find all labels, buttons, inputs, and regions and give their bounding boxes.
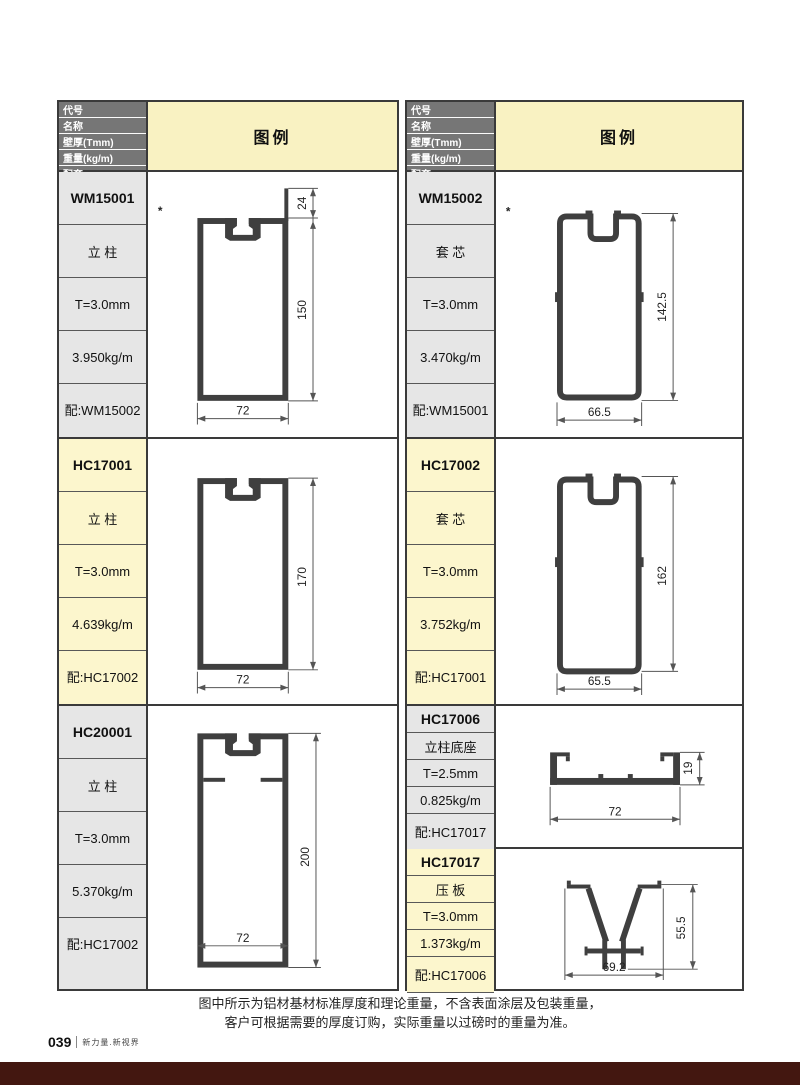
legend-header: 图例	[148, 102, 397, 170]
height-dim-label: 200	[298, 847, 312, 867]
entry-weight: 0.825kg/m	[407, 787, 494, 814]
entry-labels: HC20001 立 柱 T=3.0mm 5.370kg/m 配:HC17002	[59, 706, 148, 989]
entry-thickness: T=2.5mm	[407, 760, 494, 787]
height-dim-label: 170	[295, 567, 309, 587]
entry-thickness: T=3.0mm	[407, 545, 494, 598]
entry-match: 配:HC17002	[59, 918, 146, 989]
entry-wm15001: WM15001 立 柱 T=3.0mm 3.950kg/m 配:WM15002 …	[59, 172, 397, 439]
entry-thickness: T=3.0mm	[59, 545, 146, 598]
entry-name: 套 芯	[407, 225, 494, 278]
entry-hc17017: HC17017 压 板 T=3.0mm 1.373kg/m 配:HC17006	[407, 849, 742, 989]
profile-drawing-hc20001: 200 72	[148, 706, 397, 989]
entry-code: WM15001	[59, 172, 146, 225]
profile-drawing-wm15001: * 24 150 72	[148, 172, 397, 437]
entry-hc17006: HC17006 立柱底座 T=2.5mm 0.825kg/m 配:HC17017	[407, 706, 742, 849]
footnote: 图中所示为铝材基材标准厚度和理论重量，不含表面涂层及包装重量， 客户可根据需要的…	[0, 994, 800, 1032]
entry-weight: 3.752kg/m	[407, 598, 494, 651]
profile-drawing-wm15002: * 142.5 66.5	[496, 172, 742, 437]
entry-match: 配:HC17001	[407, 651, 494, 704]
entry-code: HC17001	[59, 439, 146, 492]
star-mark: *	[158, 204, 163, 218]
entry-weight: 3.470kg/m	[407, 331, 494, 384]
entry-match: 配:HC17002	[59, 651, 146, 704]
entry-thickness: T=3.0mm	[59, 278, 146, 331]
entry-thickness: T=3.0mm	[407, 903, 494, 930]
entry-weight: 3.950kg/m	[59, 331, 146, 384]
entry-labels: HC17006 立柱底座 T=2.5mm 0.825kg/m 配:HC17017	[407, 706, 496, 847]
entry-labels: WM15001 立 柱 T=3.0mm 3.950kg/m 配:WM15002	[59, 172, 148, 437]
header-row-weight: 重量(kg/m)	[407, 150, 494, 166]
right-table-header: 代号 名称 壁厚(Tmm) 重量(kg/m) 配套 图例	[407, 102, 742, 172]
spec-tables: 代号 名称 壁厚(Tmm) 重量(kg/m) 配套 图例 WM15001 立 柱…	[57, 100, 744, 991]
width-dim-label: 69.2	[603, 960, 626, 974]
entry-name: 立 柱	[59, 225, 146, 278]
width-dim-label: 72	[236, 404, 249, 418]
entry-labels: HC17002 套 芯 T=3.0mm 3.752kg/m 配:HC17001	[407, 439, 496, 704]
header-row-weight: 重量(kg/m)	[59, 150, 146, 166]
footnote-line2: 客户可根据需要的厚度订购，实际重量以过磅时的重量为准。	[0, 1013, 800, 1032]
width-dim-label: 72	[609, 804, 622, 818]
entry-code: HC17002	[407, 439, 494, 492]
profile-drawing-hc17001: 170 72	[148, 439, 397, 704]
footer-brand: 新力量.新视界	[82, 1037, 139, 1048]
entry-thickness: T=3.0mm	[407, 278, 494, 331]
legend-header: 图例	[496, 102, 742, 170]
entry-weight: 1.373kg/m	[407, 930, 494, 957]
header-row-code: 代号	[407, 102, 494, 118]
height-dim-label: 142.5	[655, 292, 669, 322]
fin-dim-label: 24	[295, 196, 309, 210]
drawing-area: 170 72	[148, 439, 397, 704]
entry-weight: 4.639kg/m	[59, 598, 146, 651]
drawing-area: 200 72	[148, 706, 397, 989]
entry-labels: HC17001 立 柱 T=3.0mm 4.639kg/m 配:HC17002	[59, 439, 148, 704]
height-dim-label: 55.5	[674, 916, 688, 939]
entry-code: WM15002	[407, 172, 494, 225]
header-row-code: 代号	[59, 102, 146, 118]
entry-name: 立 柱	[59, 492, 146, 545]
entry-match: 配:HC17017	[407, 814, 494, 850]
entry-match: 配:WM15001	[407, 384, 494, 437]
profile-drawing-hc17017: 55.5 69.2	[496, 849, 742, 989]
star-mark: *	[506, 204, 511, 218]
left-table: 代号 名称 壁厚(Tmm) 重量(kg/m) 配套 图例 WM15001 立 柱…	[57, 100, 399, 991]
drawing-area: * 24 150 72	[148, 172, 397, 437]
left-table-header: 代号 名称 壁厚(Tmm) 重量(kg/m) 配套 图例	[59, 102, 397, 172]
entry-name: 套 芯	[407, 492, 494, 545]
header-row-thickness: 壁厚(Tmm)	[59, 134, 146, 150]
entry-thickness: T=3.0mm	[59, 812, 146, 865]
entry-wm15002: WM15002 套 芯 T=3.0mm 3.470kg/m 配:WM15001 …	[407, 172, 742, 439]
entry-name: 立柱底座	[407, 733, 494, 760]
footer-divider	[76, 1036, 77, 1048]
entry-name: 立 柱	[59, 759, 146, 812]
width-dim-label: 72	[236, 931, 249, 945]
entry-hc17001: HC17001 立 柱 T=3.0mm 4.639kg/m 配:HC17002	[59, 439, 397, 706]
height-dim-label: 162	[655, 566, 669, 586]
width-dim-label: 65.5	[588, 674, 611, 688]
drawing-area: 19 72	[496, 706, 742, 847]
header-row-name: 名称	[59, 118, 146, 134]
entry-code: HC20001	[59, 706, 146, 759]
entry-name: 压 板	[407, 876, 494, 903]
width-dim-label: 72	[236, 673, 249, 687]
right-table: 代号 名称 壁厚(Tmm) 重量(kg/m) 配套 图例 WM15002 套 芯…	[405, 100, 744, 991]
height-dim-label: 150	[295, 300, 309, 320]
bottom-color-bar	[0, 1062, 800, 1085]
drawing-area: 55.5 69.2	[496, 849, 742, 989]
footnote-line1: 图中所示为铝材基材标准厚度和理论重量，不含表面涂层及包装重量，	[0, 994, 800, 1013]
entry-match: 配:HC17006	[407, 957, 494, 993]
header-row-name: 名称	[407, 118, 494, 134]
drawing-area: 162 65.5	[496, 439, 742, 704]
header-row-thickness: 壁厚(Tmm)	[407, 134, 494, 150]
page-footer: 039 新力量.新视界	[48, 1034, 140, 1050]
catalog-page: 代号 名称 壁厚(Tmm) 重量(kg/m) 配套 图例 WM15001 立 柱…	[0, 0, 800, 1085]
entry-weight: 5.370kg/m	[59, 865, 146, 918]
entry-labels: WM15002 套 芯 T=3.0mm 3.470kg/m 配:WM15001	[407, 172, 496, 437]
page-number: 039	[48, 1034, 71, 1050]
profile-drawing-hc17002: 162 65.5	[496, 439, 742, 704]
header-label-column: 代号 名称 壁厚(Tmm) 重量(kg/m) 配套	[407, 102, 496, 170]
drawing-area: * 142.5 66.5	[496, 172, 742, 437]
header-label-column: 代号 名称 壁厚(Tmm) 重量(kg/m) 配套	[59, 102, 148, 170]
entry-labels: HC17017 压 板 T=3.0mm 1.373kg/m 配:HC17006	[407, 849, 496, 989]
height-dim-label: 19	[681, 762, 695, 775]
profile-drawing-hc17006: 19 72	[496, 706, 742, 847]
entry-match: 配:WM15002	[59, 384, 146, 437]
entry-code: HC17006	[407, 706, 494, 733]
entry-hc17002: HC17002 套 芯 T=3.0mm 3.752kg/m 配:HC17001	[407, 439, 742, 706]
width-dim-label: 66.5	[588, 405, 611, 419]
entry-code: HC17017	[407, 849, 494, 876]
entry-hc20001: HC20001 立 柱 T=3.0mm 5.370kg/m 配:HC17002	[59, 706, 397, 989]
